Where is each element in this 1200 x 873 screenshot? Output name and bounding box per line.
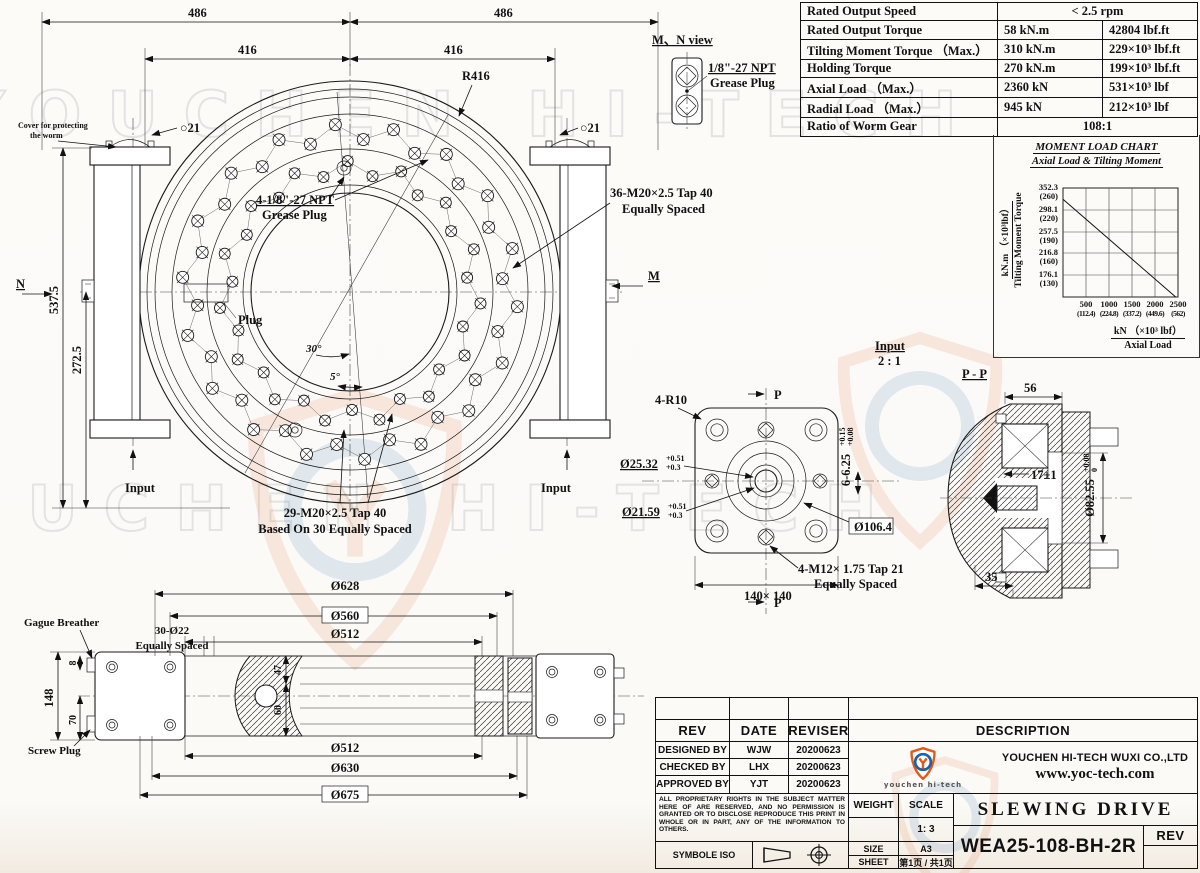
plug-label: Plug [238, 313, 263, 327]
corner-radius-label: 4-R10 [655, 393, 687, 407]
dim-560: Ø560 [331, 609, 359, 623]
pp-dim-82: Ø82.55 +0.08 0 [1082, 453, 1099, 516]
dim-512-top: Ø512 [331, 627, 359, 641]
rev-entry-cell [788, 697, 849, 720]
view-n-label: N [16, 277, 25, 291]
sheet-value: 第1页 / 共1页 [898, 855, 954, 869]
projection-symbol-icon [756, 843, 846, 867]
product-title: SLEWING DRIVE [953, 793, 1198, 826]
spec-value-metric: 310 kN.m [998, 39, 1103, 59]
grease-plug-label-1: 4-1/8"-27 NPT [256, 193, 335, 207]
table-row: Rated Output Speed< 2.5 rpm [801, 3, 1198, 21]
view-m-label: M [648, 269, 660, 283]
table-row: Ratio of Worm Gear108:1 [801, 118, 1198, 136]
dim-630: Ø630 [331, 761, 359, 775]
input-left-label: Input [125, 481, 156, 495]
spec-value-imperial: 42804 lbf.ft [1103, 21, 1198, 39]
bore-large-label: Ø25.32 [620, 457, 658, 471]
mn-view-title: M、N view [652, 33, 713, 47]
screw-plug-fitting [87, 716, 95, 732]
gauge-breather-label: Gague Breather [24, 617, 99, 629]
dim-486-left: 486 [188, 6, 207, 20]
dim-8: 8 [68, 661, 79, 666]
weight-label: WEIGHT [848, 793, 899, 818]
spec-value-imperial: 531×10³ lbf [1103, 78, 1198, 98]
spec-value: 108:1 [998, 118, 1198, 136]
input-flange-view: Input 2 : 1 P P 4-R10 [620, 339, 906, 614]
company-logo: youchen hi-tech [863, 747, 983, 789]
rev-header: REV [655, 719, 730, 742]
input-right-label: Input [541, 481, 572, 495]
angle-30-label: 30° [305, 343, 322, 355]
proprietary-note: ALL PROPRIETARY RIGHTS IN THE SUBJECT MA… [655, 793, 849, 842]
svg-text:Ø82.55: Ø82.55 [1083, 479, 1097, 517]
scale-label: SCALE [898, 793, 954, 818]
table-row: Rated Output Torque58 kN.m42804 lbf.ft [801, 21, 1198, 39]
pilot-dia-label: Ø106.4 [854, 520, 893, 534]
rev-entry-cell [655, 697, 730, 720]
spec-value-imperial: 212×10³ lbf [1103, 98, 1198, 118]
spec-label: Holding Torque [801, 59, 998, 77]
tap36-label-1: 36-M20×2.5 Tap 40 [610, 186, 713, 200]
dim-675: Ø675 [331, 788, 359, 802]
spec-value-metric: 2360 kN [998, 78, 1103, 98]
input-view-scale: 2 : 1 [878, 354, 901, 368]
angle-5-label: 5° [330, 371, 341, 383]
spec-label: Rated Output Torque [801, 21, 998, 39]
tap29-label-1: 29-M20×2.5 Tap 40 [284, 506, 387, 520]
company-website: www.yoc-tech.com [993, 766, 1197, 783]
dim-416-right: 416 [444, 43, 463, 57]
dim-r416: R416 [462, 69, 490, 83]
grease-plug-label-2: Grease Plug [262, 208, 327, 222]
company-cell: youchen hi-tech YOUCHEN HI-TECH WUXI CO.… [848, 741, 1198, 794]
key-slot-dim: 6-6.25 +0.15 +0.08 [838, 427, 855, 486]
dim-60: 60 [273, 705, 284, 715]
flange-tap-label-2: Equally Spaced [814, 577, 897, 591]
dim-416-left: 416 [238, 43, 257, 57]
table-row: Tilting Moment Torque （Max.）310 kN.m229×… [801, 39, 1198, 59]
chart-x-axis-label: kN （×10³ lbf） Axial Load [1100, 325, 1196, 352]
tap36-label-2: Equally Spaced [622, 202, 705, 216]
size-value: A3 [898, 841, 954, 856]
x-tick: 2500 [1163, 299, 1193, 309]
chart-y-axis-label: kN.m （×10³lbf） Tilting Moment Torque [1000, 165, 1026, 315]
checked-by-label: CHECKED BY [655, 758, 730, 776]
mn-view: M、N view 1/8"-27 NPT Grease Plug [652, 33, 776, 130]
bore-large-tol-up: +0.51 [666, 454, 685, 463]
dim-628: Ø628 [331, 579, 359, 593]
rev-box-value [1143, 845, 1198, 869]
dim-70: 70 [68, 715, 79, 725]
checked-by-name: LHX [729, 758, 789, 776]
company-logo-wordmark: youchen hi-tech [884, 781, 962, 789]
pp-dim-35: 35 [985, 570, 998, 584]
moment-load-chart: MOMENT LOAD CHART Axial Load & Tilting M… [993, 135, 1200, 358]
company-logo-shield-icon [908, 747, 938, 780]
square-dim-label: 140× 140 [744, 589, 792, 603]
bore-large-tol-lo: +0.3 [666, 463, 681, 472]
projection-symbols [752, 841, 849, 869]
designed-by-name: WJW [729, 741, 789, 759]
chart-load-line [1063, 199, 1176, 297]
spec-label: Radial Load （Max.） [801, 98, 998, 118]
spec-label: Rated Output Speed [801, 3, 998, 21]
size-label: SIZE [848, 841, 899, 856]
flange-tap-label-1: 4-M12× 1.75 Tap 21 [798, 562, 904, 576]
dim-hole21-left: ○21 [180, 121, 200, 135]
dim-47: 47 [273, 665, 284, 675]
gauge-breather-fitting [87, 658, 95, 672]
title-block: REV DATE REVISER DESCRIPTION DESIGNED BY… [655, 697, 1198, 869]
spec-value: < 2.5 rpm [998, 3, 1198, 21]
spec-value-metric: 945 kN [998, 98, 1103, 118]
description-header: DESCRIPTION [848, 719, 1198, 742]
symbole-iso-label: SYMBOLE ISO [655, 841, 753, 869]
dim-hole21-right: ○21 [580, 121, 600, 135]
bore-small-label: Ø21.59 [622, 505, 660, 519]
dim-272: 272.5 [70, 346, 84, 374]
rev-box-label: REV [1143, 825, 1198, 846]
weight-value [848, 817, 899, 842]
svg-text:6-6.25: 6-6.25 [839, 454, 853, 486]
spec-label: Tilting Moment Torque （Max.） [801, 39, 998, 59]
scale-value: 1: 3 [898, 817, 954, 842]
table-row: Radial Load （Max.）945 kN212×10³ lbf [801, 98, 1198, 118]
pp-dim-17: 17±1 [1031, 468, 1057, 482]
spec-table: Rated Output Speed< 2.5 rpm Rated Output… [800, 2, 1198, 137]
dim-537: 537.5 [47, 286, 61, 314]
model-number: WEA25-108-BH-2R [953, 825, 1144, 869]
cover-label-2: the worm [30, 131, 63, 140]
screw-plug-label: Screw Plug [28, 745, 81, 757]
designed-by-label: DESIGNED BY [655, 741, 730, 759]
spec-value-imperial: 229×10³ lbf.ft [1103, 39, 1198, 59]
x-tick-lbf: (562) [1161, 309, 1195, 318]
spec-value-metric: 58 kN.m [998, 21, 1103, 39]
plug-cutout [184, 284, 228, 302]
checked-by-date: 20200623 [788, 758, 849, 776]
pp-title: P - P [962, 367, 987, 381]
approved-by-label: APPROVED BY [655, 775, 730, 794]
designed-by-date: 20200623 [788, 741, 849, 759]
pp-section-view: P - P 56 17±1 [940, 367, 1135, 598]
sheet-label: SHEET [848, 855, 899, 869]
rev-entry-cell [729, 697, 789, 720]
left-worm-housing [82, 140, 170, 439]
svg-text:0: 0 [1090, 468, 1099, 472]
svg-text:+0.08: +0.08 [846, 427, 855, 446]
section-p-top: P [774, 388, 782, 402]
pp-dim-56: 56 [1024, 381, 1037, 395]
table-row: Holding Torque270 kN.m199×10³ lbf.ft [801, 59, 1198, 77]
spec-value-metric: 270 kN.m [998, 59, 1103, 77]
approved-by-date: 20200623 [788, 775, 849, 794]
cover-label-1: Cover for protecting [18, 121, 88, 130]
mn-plug-label-2: Grease Plug [710, 76, 775, 90]
date-header: DATE [729, 719, 789, 742]
tap29-label-2: Based On 30 Equally Spaced [258, 522, 412, 536]
bore-small-tol-lo: +0.3 [668, 511, 683, 520]
input-view-title: Input [875, 339, 906, 353]
side-section-view: Gague Breather Screw Plug 30-Ø22 Equally… [24, 579, 644, 802]
table-row: Axial Load （Max.）2360 kN531×10³ lbf [801, 78, 1198, 98]
dim-148: 148 [42, 689, 56, 708]
dim-486-right: 486 [494, 6, 513, 20]
bore-small-tol-up: +0.51 [668, 502, 687, 511]
holes-label-1: 30-Ø22 [155, 625, 190, 637]
drawing-sheet: YOUCHEN HI-TECH YOUCHEN HI-TECH [0, 0, 1200, 873]
spec-label: Ratio of Worm Gear [801, 118, 998, 136]
right-worm-housing [530, 140, 618, 439]
spec-value-imperial: 199×10³ lbf.ft [1103, 59, 1198, 77]
reviser-header: REVISER [788, 719, 849, 742]
spec-label: Axial Load （Max.） [801, 78, 998, 98]
rev-entry-cell [848, 697, 1198, 720]
mn-plug-label-1: 1/8"-27 NPT [708, 61, 776, 75]
top-view: 486 486 416 416 R416 ○21 ○21 Cover for p… [16, 6, 713, 536]
approved-by-name: YJT [729, 775, 789, 794]
company-name: YOUCHEN HI-TECH WUXI CO.,LTD [993, 752, 1197, 764]
dim-512-bottom: Ø512 [331, 741, 359, 755]
